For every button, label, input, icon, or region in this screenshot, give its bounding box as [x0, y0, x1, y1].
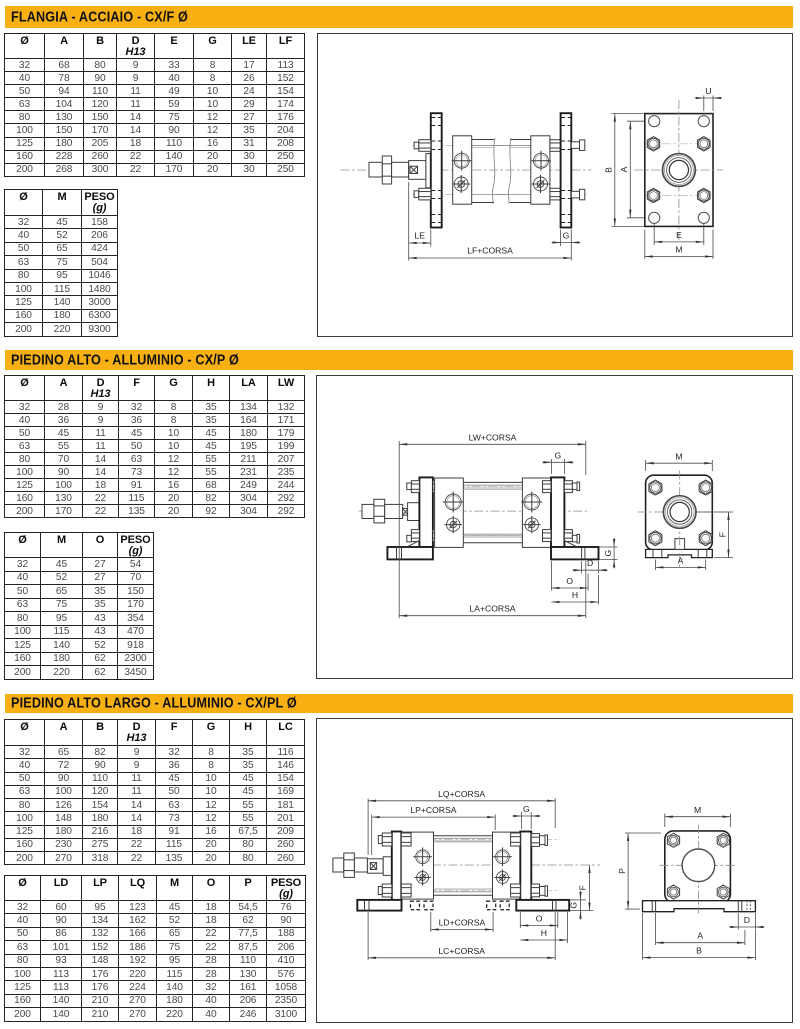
svg-text:D: D: [587, 558, 593, 568]
svg-text:G: G: [562, 231, 569, 241]
svg-text:F: F: [717, 532, 727, 537]
svg-text:A: A: [619, 166, 629, 172]
svg-text:LA+CORSA: LA+CORSA: [469, 604, 515, 614]
svg-text:P: P: [617, 868, 627, 874]
svg-text:G: G: [555, 450, 562, 460]
svg-text:LW+CORSA: LW+CORSA: [469, 432, 517, 442]
svg-text:D: D: [744, 915, 750, 925]
svg-text:H: H: [572, 590, 578, 600]
svg-text:G: G: [523, 804, 530, 814]
svg-text:M: M: [694, 805, 701, 815]
svg-text:LF+CORSA: LF+CORSA: [467, 246, 513, 256]
svg-text:A: A: [678, 556, 684, 566]
svg-text:A: A: [697, 931, 703, 941]
svg-text:F: F: [578, 885, 588, 890]
svg-text:LC+CORSA: LC+CORSA: [438, 946, 485, 956]
svg-text:O: O: [566, 576, 573, 586]
svg-text:LQ+CORSA: LQ+CORSA: [438, 789, 485, 799]
svg-text:U: U: [705, 86, 711, 96]
svg-text:B: B: [696, 946, 702, 956]
svg-text:LD+CORSA: LD+CORSA: [439, 918, 486, 928]
svg-text:O: O: [536, 913, 543, 923]
svg-text:E: E: [676, 230, 682, 240]
svg-text:G: G: [569, 902, 579, 909]
svg-text:M: M: [675, 451, 682, 461]
svg-text:B: B: [603, 167, 613, 173]
svg-text:LP+CORSA: LP+CORSA: [410, 805, 456, 815]
svg-text:M: M: [675, 245, 682, 255]
svg-text:H: H: [541, 928, 547, 938]
svg-text:LE: LE: [414, 231, 425, 241]
svg-text:G: G: [603, 550, 613, 557]
